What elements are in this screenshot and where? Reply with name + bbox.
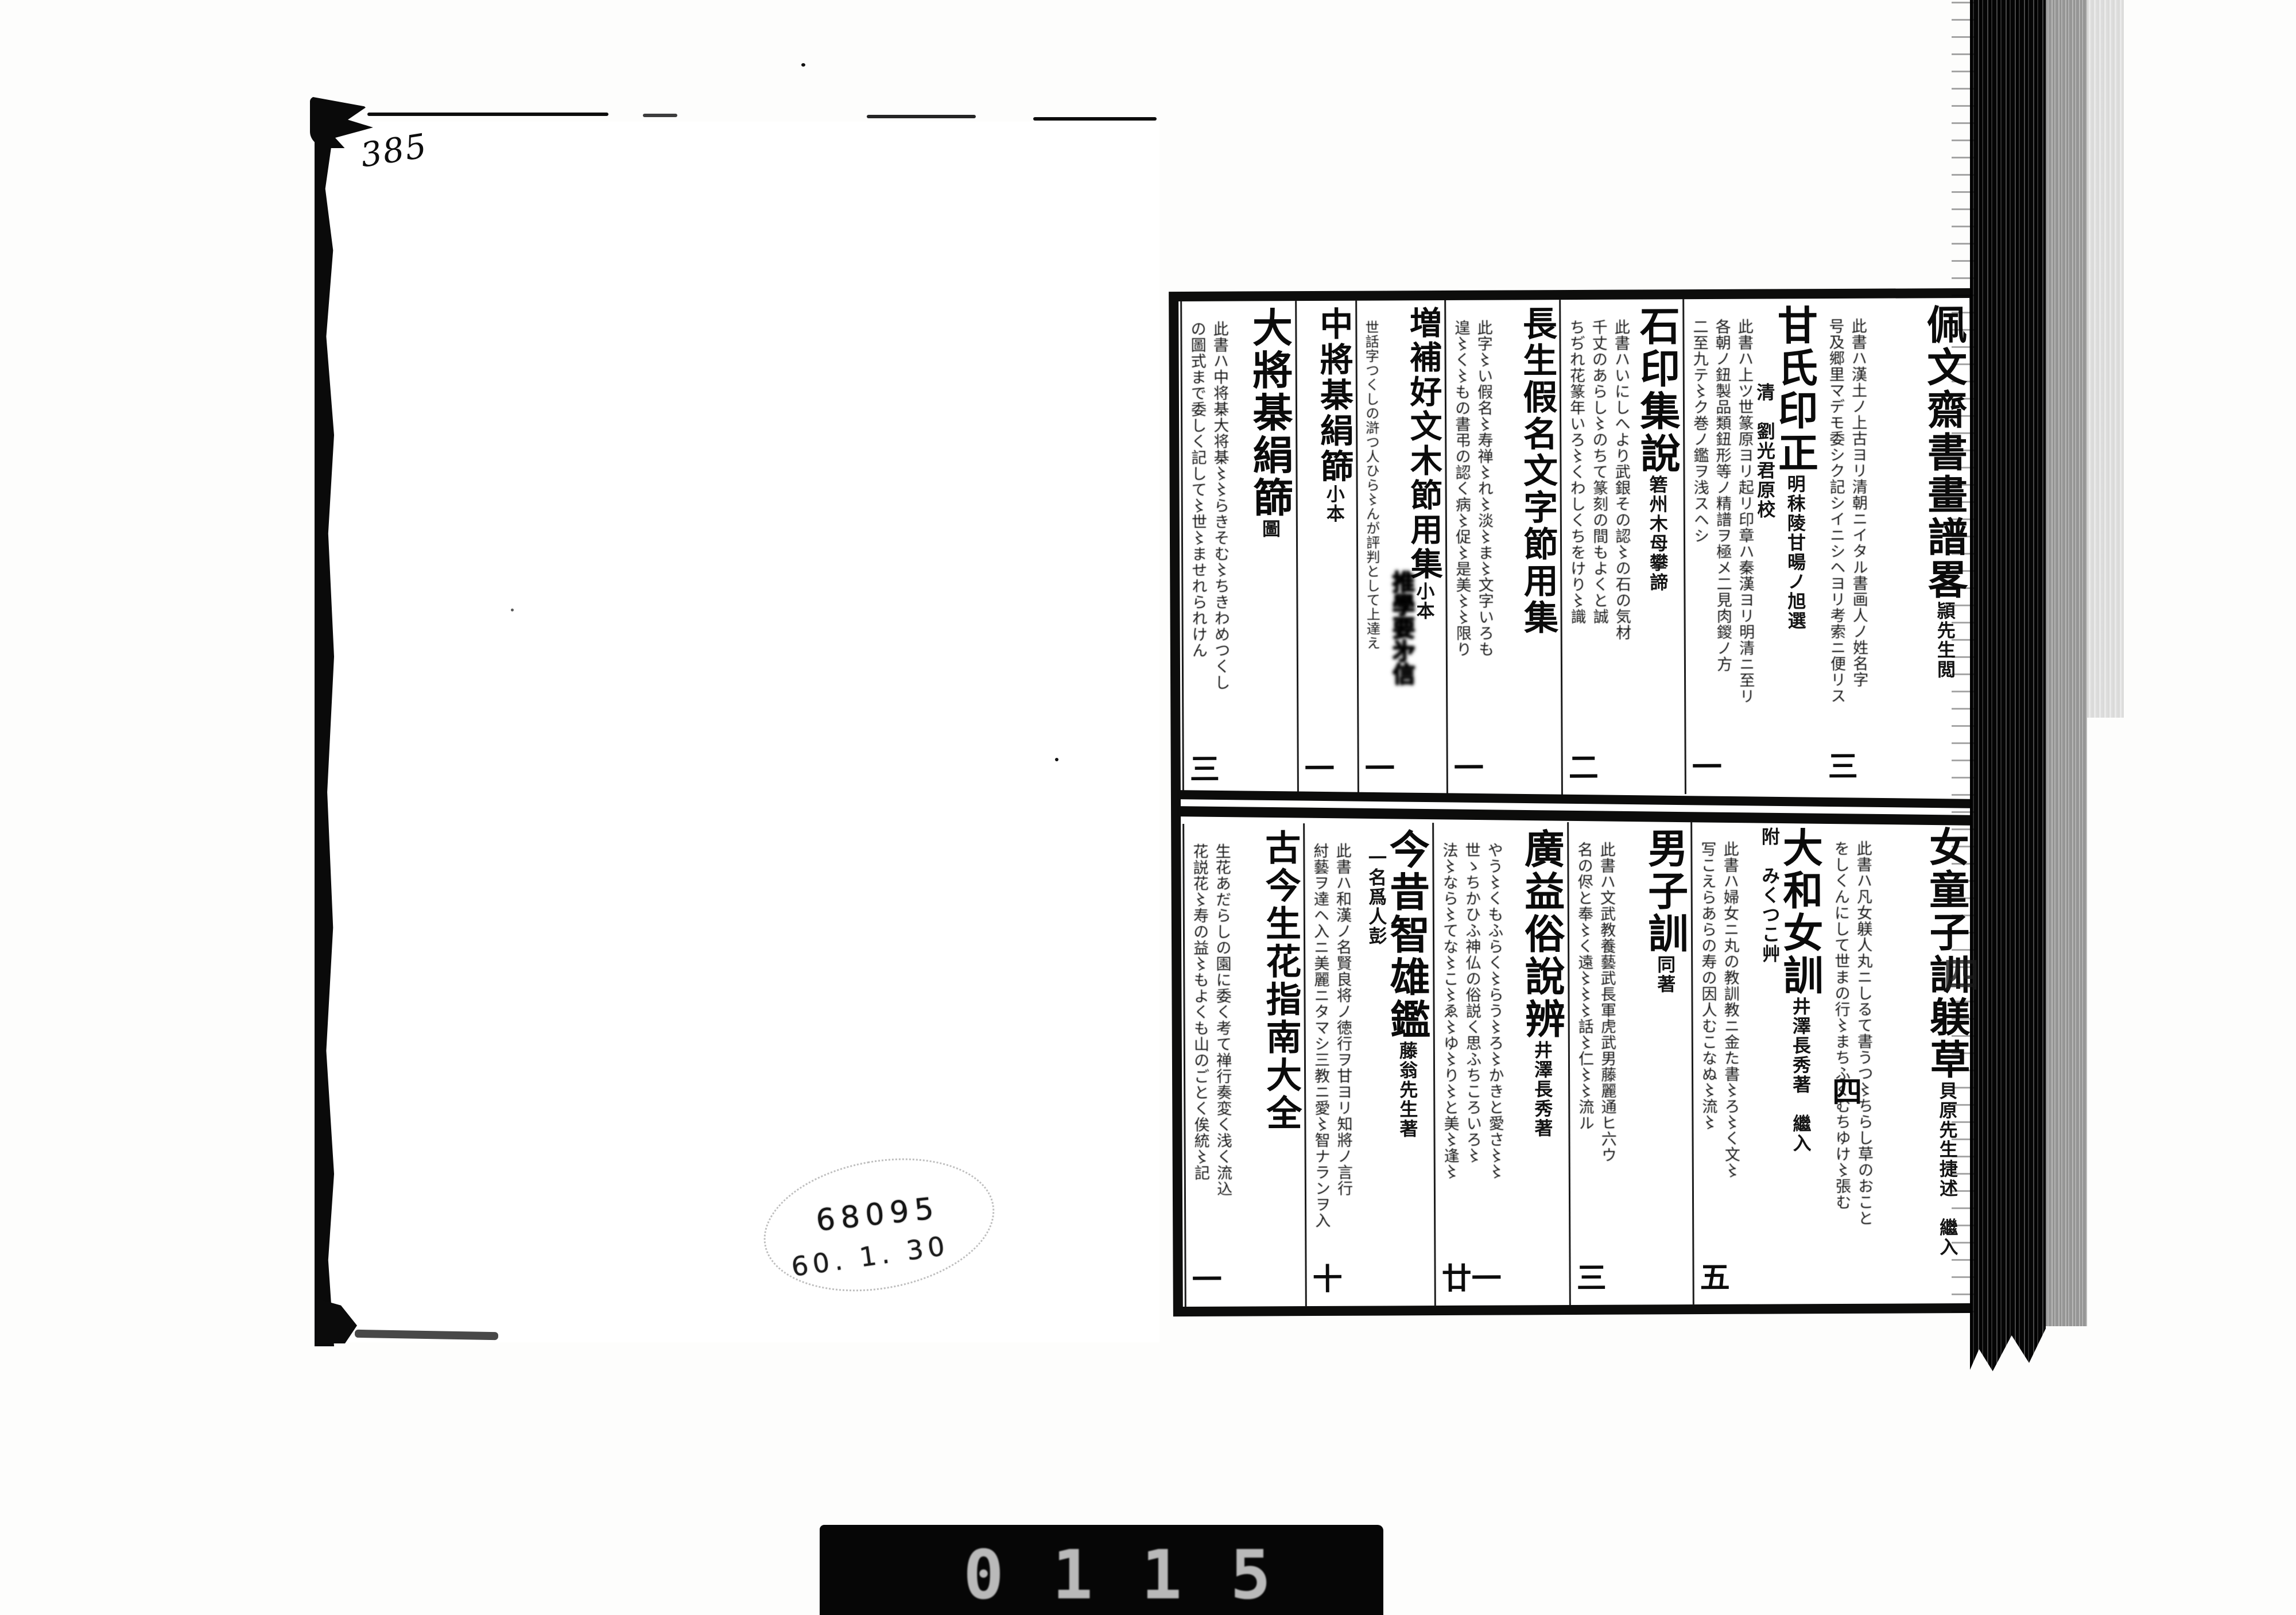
book-annotation: 同著	[1654, 955, 1676, 994]
volume-count: 一	[1365, 744, 1395, 787]
book-description: 此書ハいにしへより武銀その認〻の石の気材 千丈のあらし〻のちて篆刻の間もよくと誠…	[1564, 319, 1634, 775]
film-frame-bar: 0115	[820, 1525, 1383, 1615]
catalog-entry: 今昔智雄鑑藤翁先生著 一名爲人彭 此書ハ和漢ノ名賢良将ノ徳行ヲ甘ヨリ知將ノ言行 …	[1303, 823, 1434, 1306]
catalog-entry: 男子訓同著 此書ハ文武教養藝武長軍虎武男藤麗通ヒ六ウ 名の侭と奉〻く遠〻〻〻話〻…	[1567, 822, 1693, 1305]
book-title: 増補好文木節用集	[1404, 306, 1443, 582]
book-annotation: 圖	[1259, 519, 1281, 539]
volume-count: 一	[1305, 745, 1335, 788]
catalog-section-lower: 女童子訓躾草貝原先生捷述 繼入 此書ハ凡女躾人丸ニしるて書うつ〻ちらし草のおこと…	[1181, 820, 1974, 1307]
left-blank-page	[317, 122, 1159, 1342]
left-page-top-border	[367, 113, 608, 116]
speck	[801, 63, 805, 67]
catalog-entry: 廣益俗說辨井澤長秀著 やう〻くもふらく〻らう〻ろ〻かきと愛さ〻〻 世ゝちかひふ神…	[1432, 822, 1569, 1306]
volume-count: 一	[1192, 1256, 1221, 1299]
binding-speckle	[1952, 0, 1975, 1320]
book-title: 大將棊絹篩	[1246, 307, 1294, 519]
book-title: 今昔智雄鑑	[1383, 828, 1432, 1041]
catalog-entry: 大將棊絹篩圖 此書ハ中将棊大将棊〻〻らきそむ〻ちきわめつくし の圖式まで委しく記…	[1180, 301, 1297, 796]
catalog-entry: 中將棊絹篩小本 一	[1295, 301, 1358, 796]
book-description: 世話字つくしの滸つ人ひら〻んが評判として上達え	[1360, 320, 1382, 775]
book-description: 此字〻い假名〻寿禅〻れ〻淡〻ま〻文字いろも 遑〻く〻もの書弔の認く病〻促〻是美〻…	[1449, 320, 1496, 775]
volume-count: 廿一	[1441, 1254, 1501, 1298]
volume-count: 五	[1700, 1253, 1729, 1296]
book-description: 此書ハ和漢ノ名賢良将ノ徳行ヲ甘ヨリ知將ノ言行 紂藝ヲ達ヘ入ニ美麗ニタマシ三教ニ愛…	[1308, 843, 1355, 1287]
book-description: 此書ハ上ツ世篆原ヨリ起リ印章ハ秦漢ヨリ明清ニ至リ 各朝ノ鈕製品類鈕形等ノ精譜ヲ極…	[1688, 319, 1757, 774]
volume-count: 三	[1190, 745, 1220, 788]
book-description: 此書ハ漢土ノ上古ヨリ清朝ニイタル書画人ノ姓名字 号及郷里マデモ委シク記シイニシヘ…	[1824, 318, 1871, 773]
volume-count: 十	[1312, 1255, 1342, 1298]
catalog-entry: 古今生花指南大全 生花あだらしの園に委く考て禅行奏変く浅く流込 花説花〻寿の益〻…	[1182, 823, 1305, 1307]
volume-count: 三	[1576, 1254, 1606, 1297]
book-title: 古今生花指南大全	[1259, 829, 1302, 1132]
book-description: 此書ハ文武教養藝武長軍虎武男藤麗通ヒ六ウ 名の侭と奉〻く遠〻〻〻話〻仁〻〻流ル	[1572, 842, 1619, 1286]
volume-count: 四	[1832, 1068, 1862, 1111]
catalog-entry: 大和女訓井澤長秀著 繼入 附 みくつこ艸 此書ハ婦女ニ丸の教訓教ニ金た書〻ろ〻く…	[1690, 821, 1828, 1304]
left-page-top-border	[867, 115, 976, 118]
film-frame-digits: 0115	[963, 1535, 1319, 1614]
catalog-entry: 増補好文木節用集小本 世話字つくしの滸つ人ひら〻んが評判として上達え 推學要㐧信…	[1355, 300, 1446, 796]
ink-smudge-note: 推學要㐧信	[1384, 570, 1418, 685]
book-title: 大和女訓	[1776, 827, 1824, 997]
book-annotation: 小本	[1324, 485, 1345, 524]
book-description: 此書ハ中将棊大将棊〻〻らきそむ〻ちきわめつくし の圖式まで委しく記して〻世〻ませ…	[1185, 321, 1232, 776]
catalog-entry: 長生假名文字節用集 此字〻い假名〻寿禅〻れ〻淡〻ま〻文字いろも 遑〻く〻もの書弔…	[1444, 300, 1561, 795]
catalog-entry: 甘氏印正明秣陵甘暘ノ旭選 清 劉光君原校 此書ハ上ツ世篆原ヨリ起リ印章ハ秦漢ヨリ…	[1682, 299, 1822, 794]
ghost-character: 四	[1944, 946, 1979, 998]
left-page-top-border	[643, 114, 677, 117]
catalog-entry: 石印集說箬州木母攀諦 此書ハいにしへより武銀その認〻の石の気材 千丈のあらし〻の…	[1559, 299, 1685, 795]
volume-count: 二	[1569, 743, 1599, 787]
catalog-section-upper: 佩文齋書畫譜畧頴先生閲 此書ハ漢土ノ上古ヨリ清朝ニイタル書画人ノ姓名字 号及郷里…	[1178, 298, 1972, 796]
book-description: やう〻くもふらく〻らう〻ろ〻かきと愛さ〻〻 世ゝちかひふ神仏の俗説く思ふちころい…	[1437, 842, 1507, 1287]
binding-shadow-band	[1970, 0, 2046, 1377]
speck	[511, 609, 514, 611]
book-title: 石印集說	[1633, 305, 1681, 475]
book-title: 廣益俗說辨	[1518, 828, 1566, 1040]
book-title: 中將棊絹篩	[1314, 307, 1353, 485]
volume-count: 三	[1828, 742, 1858, 785]
book-annotation: 井澤長秀著	[1531, 1040, 1554, 1138]
binding-shadow-band-faint	[2087, 0, 2124, 718]
book-description: 生花あだらしの園に委く考て禅行奏変く浅く流込 花説花〻寿の益〻もよくも山のごとく…	[1188, 843, 1235, 1288]
book-title: 男子訓	[1641, 827, 1689, 955]
book-description: 此書ハ婦女ニ丸の教訓教ニ金た書〻ろ〻く文〻 写こえらあらの寿の因人むこなぬ〻流〻	[1696, 841, 1743, 1285]
volume-count: 一	[1454, 744, 1484, 787]
speck	[1055, 758, 1058, 761]
volume-count: 一	[1692, 743, 1722, 786]
book-title: 甘氏印正	[1771, 304, 1819, 474]
book-title: 長生假名文字節用集	[1517, 305, 1558, 636]
catalog-table: 佩文齋書畫譜畧頴先生閲 此書ハ漢土ノ上古ヨリ清朝ニイタル書画人ノ姓名字 号及郷里…	[1169, 288, 1984, 1316]
left-page-top-border	[1033, 117, 1157, 121]
binding-shadow-band-outer	[2046, 0, 2087, 1326]
book-annotation: 箬州木母攀諦	[1647, 475, 1669, 592]
book-description: 此書ハ凡女躾人丸ニしるて書うつ〻ちらし草のおこと をしくんにして世まの行〻まちふ…	[1829, 841, 1876, 1285]
scanned-book-spread: 385 68095 60. 1. 30 佩文齋書畫譜畧頴先生閲 此書ハ漢土ノ上古…	[0, 0, 2296, 1615]
catalog-entry: 佩文齋書畫譜畧頴先生閲 此書ハ漢土ノ上古ヨリ清朝ニイタル書画人ノ姓名字 号及郷里…	[1820, 298, 1972, 793]
